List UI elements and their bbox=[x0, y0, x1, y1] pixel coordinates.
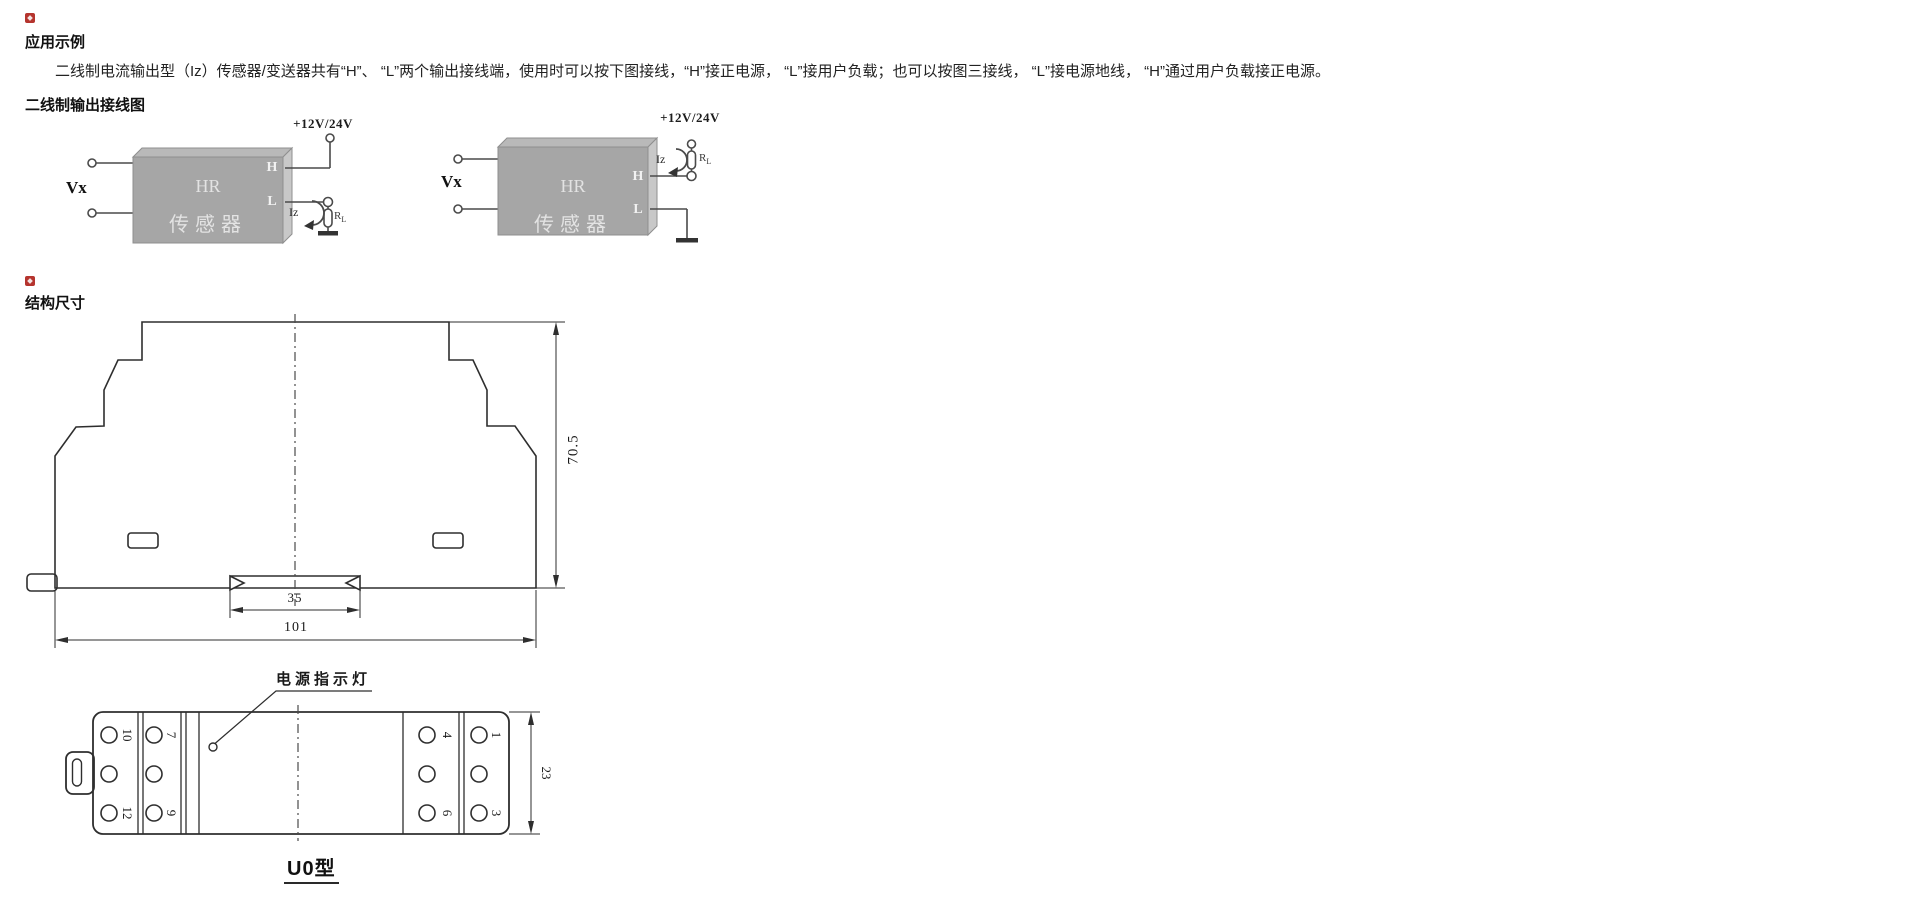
terminal-h-label: H bbox=[264, 160, 280, 176]
input-terminal-icon bbox=[454, 205, 462, 213]
din-latch-tab bbox=[27, 574, 57, 591]
ground-symbol-icon bbox=[676, 238, 698, 243]
input-voltage-label: Vx bbox=[441, 172, 462, 192]
terminal-number: 10 bbox=[119, 725, 135, 745]
device-name: HR bbox=[143, 176, 273, 197]
current-arrow-icon bbox=[668, 149, 687, 177]
terminal-number: 12 bbox=[119, 803, 135, 823]
output-current-label: Iz bbox=[289, 205, 298, 220]
power-terminal-icon bbox=[326, 134, 334, 142]
mounting-slot bbox=[128, 533, 158, 548]
load-resistor-label: RL bbox=[699, 152, 711, 166]
input-terminal-icon bbox=[88, 209, 96, 217]
terminal-number: 9 bbox=[163, 803, 179, 823]
terminal-number: 1 bbox=[488, 725, 504, 745]
input-terminal-icon bbox=[454, 155, 462, 163]
load-resistor-label: RL bbox=[334, 210, 346, 224]
mounting-slot bbox=[433, 533, 463, 548]
front-view-drawing-svg bbox=[0, 300, 660, 660]
load-resistor bbox=[688, 140, 696, 172]
ground-symbol-icon bbox=[318, 231, 338, 236]
power-supply-label: +12V/24V bbox=[288, 116, 358, 132]
power-led-icon bbox=[209, 743, 217, 751]
led-label: 电源指示灯 bbox=[276, 668, 371, 689]
housing-outline bbox=[27, 322, 536, 591]
load-terminal-icon bbox=[687, 172, 696, 181]
load-terminal-icon bbox=[324, 198, 333, 207]
dimension-lines bbox=[509, 712, 540, 834]
din-latch-tab bbox=[66, 752, 94, 794]
input-terminal-icon bbox=[88, 159, 96, 167]
power-terminal-icon bbox=[688, 140, 696, 148]
datasheet-page: 应用示例 二线制电流输出型（Iz）传感器/变送器共有“H”、 “L”两个输出接线… bbox=[0, 0, 1920, 908]
wiring-diagrams-svg bbox=[0, 0, 780, 270]
device-name: HR bbox=[508, 176, 638, 197]
current-arrow-icon bbox=[304, 201, 324, 230]
terminal-screws bbox=[101, 727, 487, 821]
terminal-number: 7 bbox=[163, 725, 179, 745]
dim-total-width: 101 bbox=[271, 620, 321, 636]
output-current-label: Iz bbox=[656, 152, 665, 167]
input-voltage-label: Vx bbox=[66, 178, 87, 198]
latch-slot bbox=[73, 759, 82, 786]
device-type-label: 传感器 bbox=[143, 208, 273, 237]
dim-rail-width: 35 bbox=[270, 590, 320, 606]
terminal-number: 4 bbox=[439, 725, 455, 745]
terminal-number: 6 bbox=[439, 803, 455, 823]
section-marker-icon bbox=[25, 276, 35, 286]
power-supply-label: +12V/24V bbox=[655, 110, 725, 126]
led-leader-line bbox=[215, 691, 372, 744]
housing-type-caption: U0型 bbox=[284, 852, 339, 884]
terminal-dividers bbox=[138, 712, 464, 834]
marker-glyph-icon bbox=[27, 278, 33, 284]
dim-depth: 23 bbox=[538, 760, 554, 786]
dim-height: 70.5 bbox=[566, 422, 583, 478]
terminal-number: 3 bbox=[488, 803, 504, 823]
device-type-label: 传感器 bbox=[508, 208, 638, 237]
